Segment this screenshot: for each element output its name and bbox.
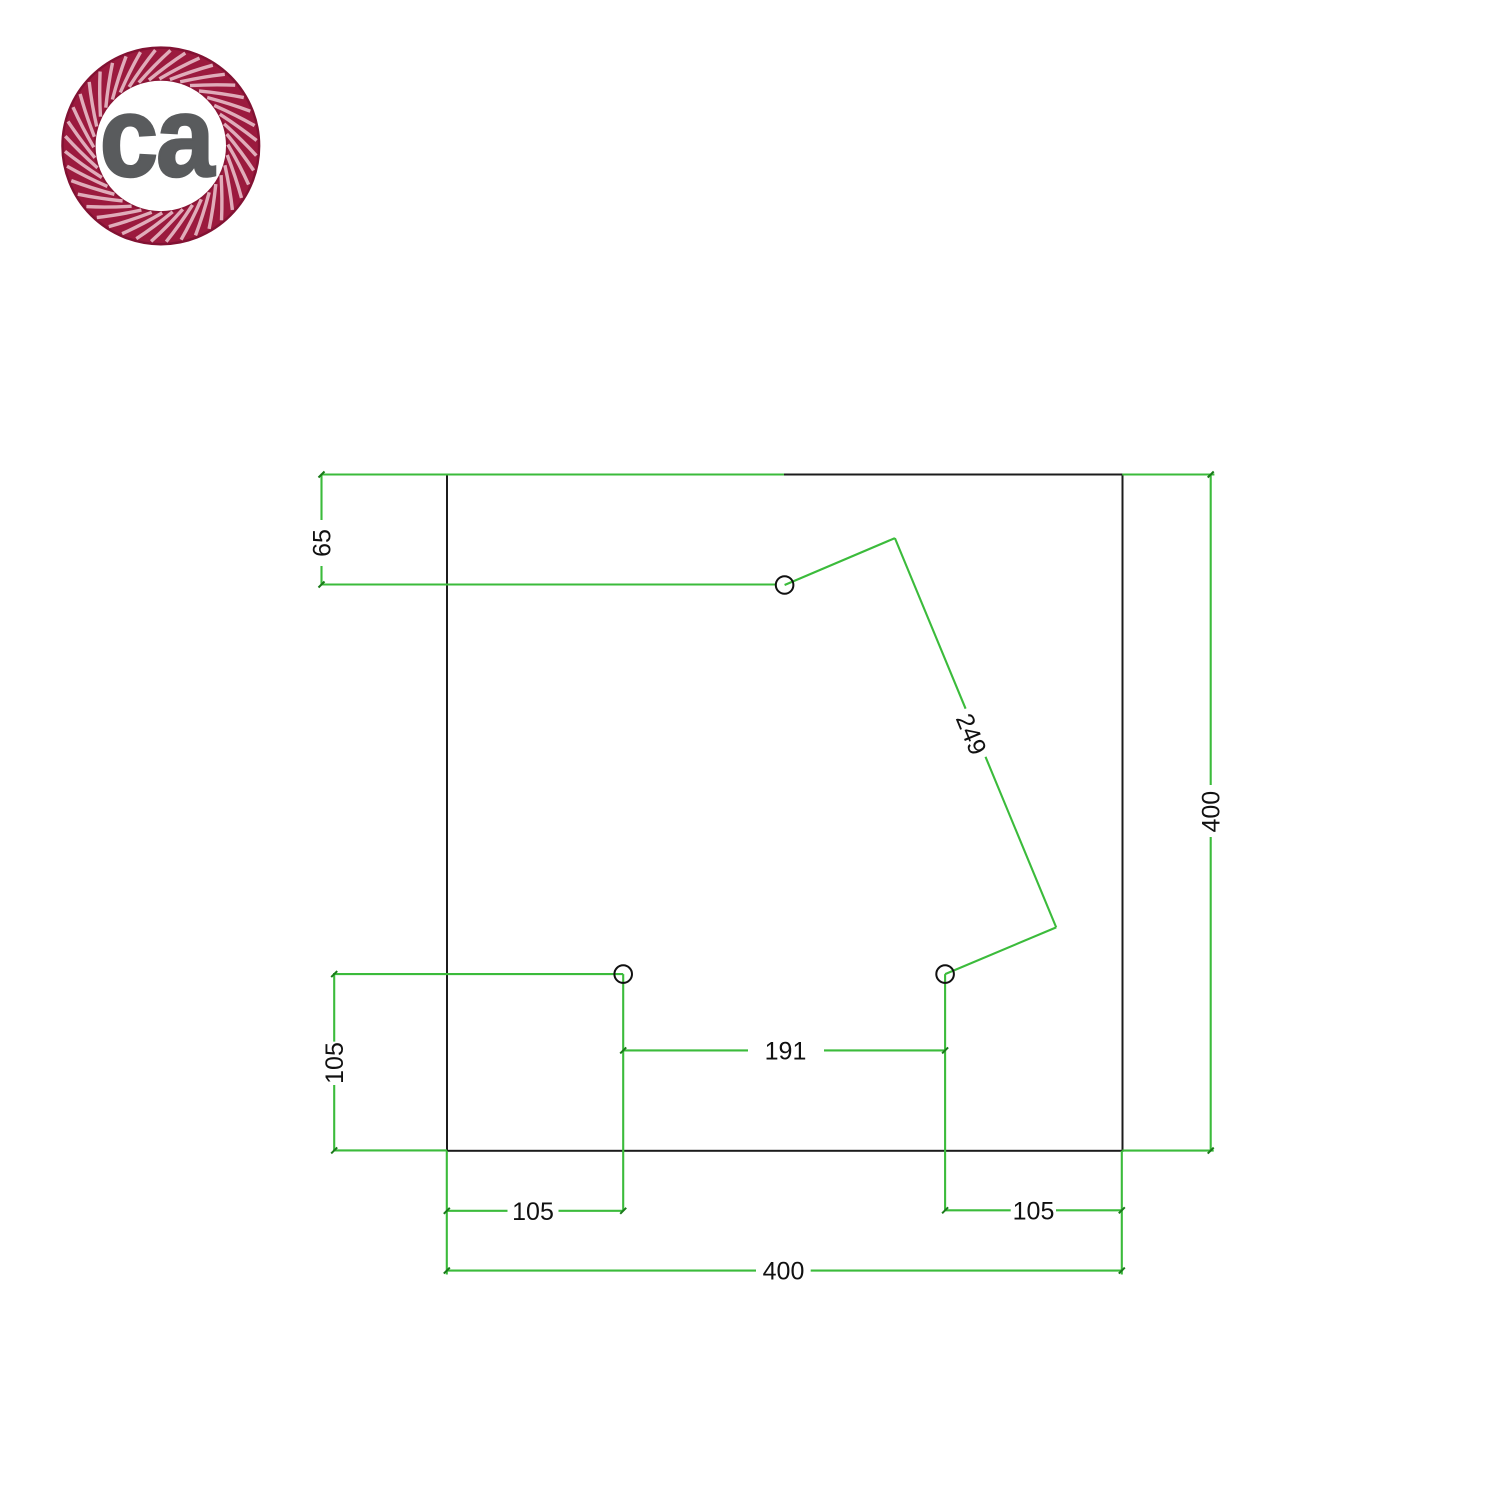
svg-text:400: 400 xyxy=(1198,791,1226,833)
svg-text:400: 400 xyxy=(763,1258,805,1286)
svg-text:191: 191 xyxy=(765,1037,807,1065)
svg-text:105: 105 xyxy=(512,1198,554,1226)
svg-text:105: 105 xyxy=(1013,1197,1055,1225)
svg-text:65: 65 xyxy=(309,529,337,557)
svg-text:ca: ca xyxy=(100,74,216,201)
svg-text:105: 105 xyxy=(321,1042,349,1084)
